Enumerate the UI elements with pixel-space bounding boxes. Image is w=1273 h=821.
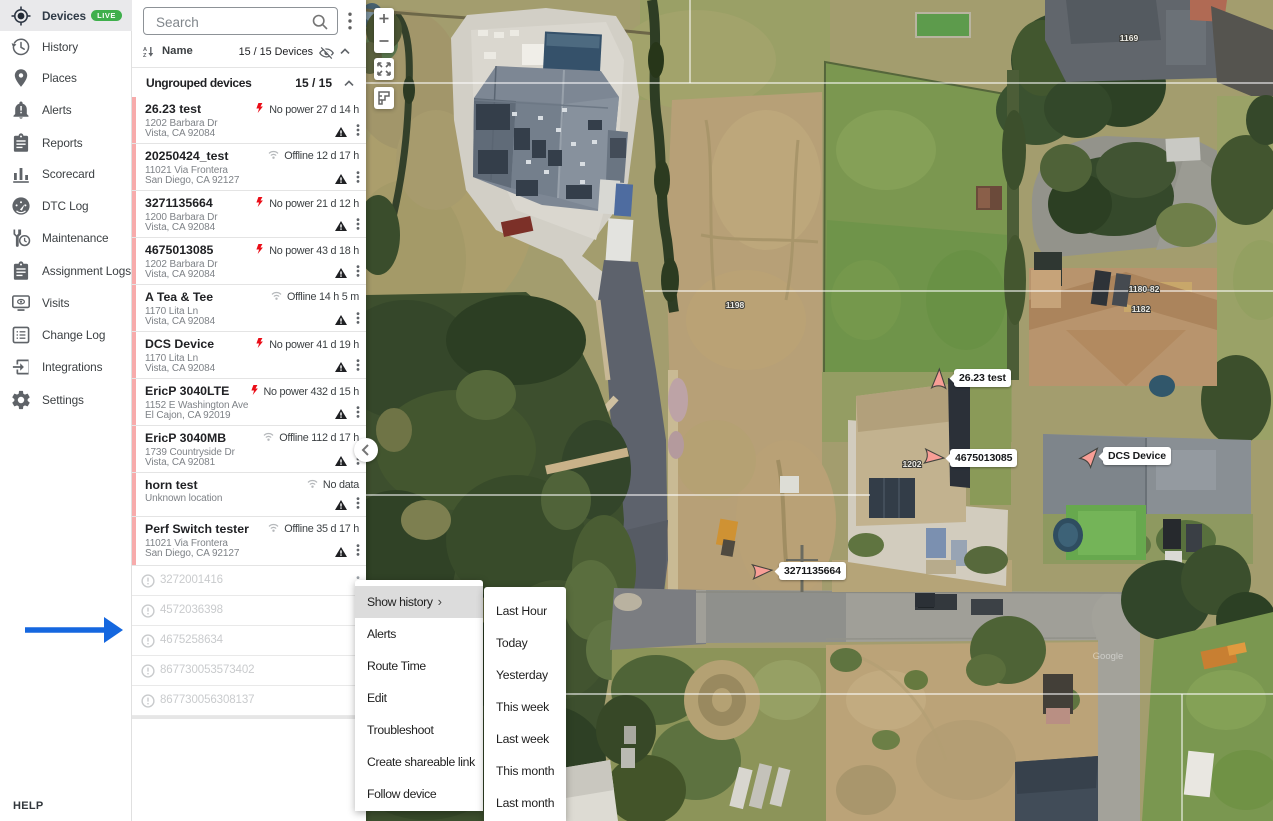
svg-text:Z: Z — [143, 53, 147, 57]
svg-text:1169: 1169 — [1120, 33, 1139, 43]
svg-text:1202: 1202 — [903, 459, 922, 469]
svg-text:Google: Google — [1093, 651, 1124, 662]
svg-text:1182: 1182 — [1132, 304, 1151, 314]
svg-text:1180-82: 1180-82 — [1129, 284, 1160, 294]
svg-text:1198: 1198 — [726, 300, 745, 310]
